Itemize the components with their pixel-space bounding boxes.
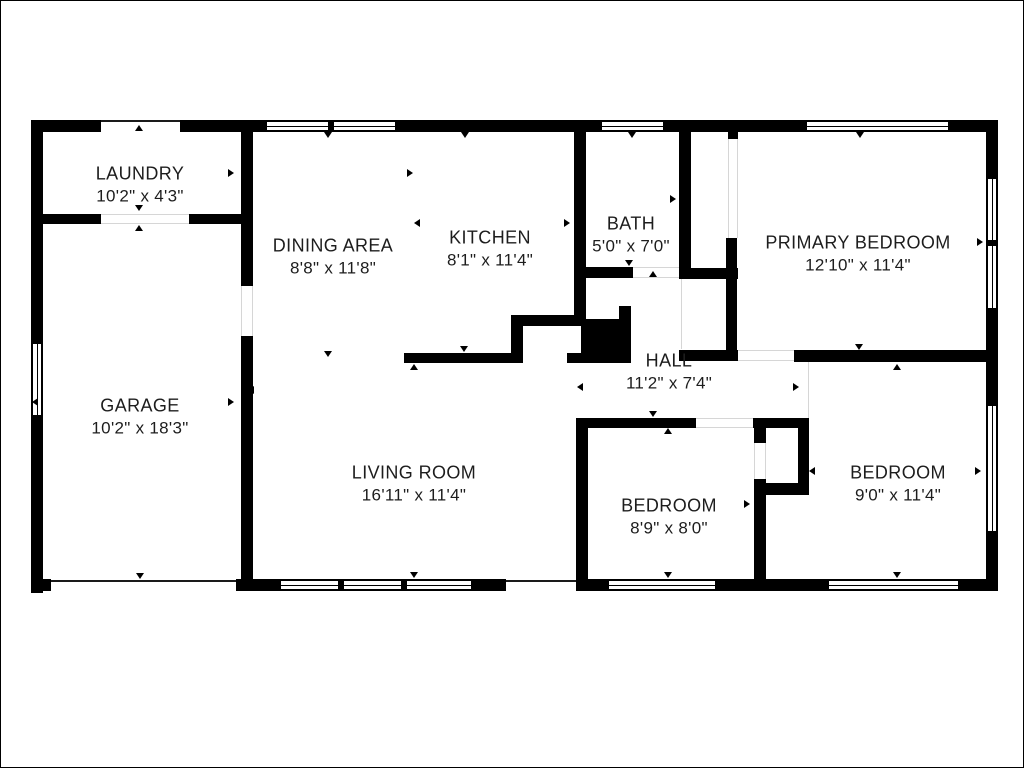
door-opening bbox=[696, 427, 753, 428]
wall bbox=[794, 350, 986, 362]
window-icon bbox=[986, 176, 998, 243]
window-icon bbox=[31, 341, 43, 418]
dimension-arrow-icon bbox=[893, 572, 901, 578]
window-icon bbox=[804, 120, 951, 132]
floor-plan: LAUNDRY10'2" x 4'3"DINING AREA8'8" x 11'… bbox=[0, 0, 1024, 768]
window-glass-line bbox=[992, 406, 993, 531]
room-dimensions: 16'11" x 11'4" bbox=[352, 485, 476, 506]
room-name: HALL bbox=[626, 351, 712, 372]
window-icon bbox=[404, 579, 474, 591]
room-dimensions: 5'0" x 7'0" bbox=[592, 236, 670, 257]
wall bbox=[726, 238, 737, 361]
door-opening bbox=[241, 286, 242, 336]
room-dimensions: 9'0" x 11'4" bbox=[850, 485, 946, 506]
wall bbox=[511, 315, 523, 363]
window-glass-line bbox=[609, 585, 715, 586]
door-opening bbox=[633, 277, 679, 278]
door-opening bbox=[737, 139, 738, 238]
dimension-arrow-icon bbox=[893, 364, 901, 370]
dimension-arrow-icon bbox=[407, 169, 413, 177]
window-glass-line bbox=[829, 585, 958, 586]
room-name: LAUNDRY bbox=[96, 164, 185, 185]
window-icon bbox=[986, 403, 998, 534]
dimension-arrow-icon bbox=[410, 572, 418, 578]
door-opening bbox=[252, 286, 253, 336]
wall bbox=[474, 579, 506, 591]
room-name: PRIMARY BEDROOM bbox=[765, 233, 950, 254]
wall bbox=[241, 336, 253, 591]
dimension-arrow-icon bbox=[579, 500, 585, 508]
room-dimensions: 10'2" x 4'3" bbox=[96, 186, 185, 207]
dimension-arrow-icon bbox=[32, 169, 38, 177]
room-dimensions: 8'8" x 11'8" bbox=[273, 258, 393, 279]
wall bbox=[961, 579, 998, 591]
window-icon bbox=[341, 579, 404, 591]
door-opening bbox=[101, 120, 180, 122]
dimension-arrow-icon bbox=[135, 125, 143, 131]
window-icon bbox=[986, 243, 998, 311]
room-name: DINING AREA bbox=[273, 236, 393, 257]
window-icon bbox=[331, 120, 398, 132]
wall bbox=[581, 319, 631, 363]
dimension-arrow-icon bbox=[564, 219, 570, 227]
dimension-arrow-icon bbox=[744, 500, 750, 508]
room-dimensions: 12'10" x 11'4" bbox=[765, 255, 950, 276]
room-dimensions: 10'2" x 18'3" bbox=[91, 418, 188, 439]
room-dimensions: 8'9" x 8'0" bbox=[621, 518, 717, 539]
door-opening bbox=[101, 223, 189, 224]
window-glass-line bbox=[992, 246, 993, 308]
window-icon bbox=[278, 579, 341, 591]
dimension-arrow-icon bbox=[461, 132, 469, 138]
room-label-bath: BATH5'0" x 7'0" bbox=[592, 214, 670, 257]
wall bbox=[579, 267, 633, 278]
dimension-arrow-icon bbox=[855, 344, 863, 350]
wall bbox=[756, 483, 809, 495]
door-opening bbox=[765, 443, 766, 479]
dimension-arrow-icon bbox=[324, 132, 332, 138]
dimension-arrow-icon bbox=[136, 573, 144, 579]
wall bbox=[576, 418, 696, 428]
window-icon bbox=[264, 120, 331, 132]
dimension-arrow-icon bbox=[247, 169, 253, 177]
wall bbox=[619, 306, 631, 319]
door-opening bbox=[101, 214, 189, 215]
door-opening bbox=[696, 418, 753, 419]
window-icon bbox=[606, 579, 718, 591]
window-icon bbox=[826, 579, 961, 591]
wall bbox=[404, 353, 523, 363]
dimension-arrow-icon bbox=[324, 351, 332, 357]
dimension-arrow-icon bbox=[228, 398, 234, 406]
room-label-bedroom2: BEDROOM8'9" x 8'0" bbox=[621, 496, 717, 539]
door-opening bbox=[681, 279, 682, 349]
dimension-arrow-icon bbox=[228, 169, 234, 177]
dimension-arrow-icon bbox=[977, 238, 983, 246]
window-glass-line bbox=[334, 126, 395, 127]
wall bbox=[398, 120, 599, 132]
room-name: GARAGE bbox=[91, 396, 188, 417]
wall bbox=[798, 418, 809, 493]
dimension-arrow-icon bbox=[135, 225, 143, 231]
wall bbox=[31, 579, 51, 591]
window-glass-line bbox=[992, 179, 993, 240]
wall bbox=[31, 120, 43, 341]
door-opening bbox=[808, 362, 809, 418]
dimension-arrow-icon bbox=[649, 271, 657, 277]
dimension-arrow-icon bbox=[664, 572, 672, 578]
dimension-arrow-icon bbox=[664, 428, 672, 434]
dimension-arrow-icon bbox=[248, 386, 254, 394]
door-opening bbox=[754, 443, 755, 479]
dimension-arrow-icon bbox=[809, 467, 815, 475]
room-label-bedroom3: BEDROOM9'0" x 11'4" bbox=[850, 463, 946, 506]
window-glass-line bbox=[281, 585, 338, 586]
wall bbox=[31, 418, 43, 593]
room-dimensions: 8'1" x 11'4" bbox=[447, 250, 533, 271]
window-glass-line bbox=[344, 585, 401, 586]
room-label-hall: HALL11'2" x 7'4" bbox=[626, 351, 712, 394]
wall bbox=[728, 120, 738, 139]
room-label-laundry: LAUNDRY10'2" x 4'3" bbox=[96, 164, 185, 207]
wall bbox=[986, 311, 998, 403]
window-glass-line bbox=[807, 126, 948, 127]
wall bbox=[679, 132, 691, 279]
dimension-arrow-icon bbox=[414, 219, 420, 227]
room-label-kitchen: KITCHEN8'1" x 11'4" bbox=[447, 228, 533, 271]
wall bbox=[986, 120, 998, 176]
room-label-primary: PRIMARY BEDROOM12'10" x 11'4" bbox=[765, 233, 950, 276]
dimension-arrow-icon bbox=[32, 398, 38, 406]
room-name: KITCHEN bbox=[447, 228, 533, 249]
door-opening bbox=[506, 580, 576, 582]
door-opening bbox=[728, 139, 729, 238]
wall bbox=[574, 132, 586, 326]
window-glass-line bbox=[602, 126, 663, 127]
room-name: LIVING ROOM bbox=[352, 463, 476, 484]
window-glass-line bbox=[407, 585, 471, 586]
wall bbox=[241, 120, 253, 286]
room-label-garage: GARAGE10'2" x 18'3" bbox=[91, 396, 188, 439]
window-glass-line bbox=[267, 126, 328, 127]
dimension-arrow-icon bbox=[625, 260, 633, 266]
room-name: BATH bbox=[592, 214, 670, 235]
door-opening bbox=[51, 580, 236, 582]
dimension-arrow-icon bbox=[628, 132, 636, 138]
dimension-arrow-icon bbox=[577, 383, 583, 391]
room-name: BEDROOM bbox=[850, 463, 946, 484]
dimension-arrow-icon bbox=[729, 239, 735, 247]
dimension-arrow-icon bbox=[793, 383, 799, 391]
window-icon bbox=[599, 120, 666, 132]
dimension-arrow-icon bbox=[856, 132, 864, 138]
dimension-arrow-icon bbox=[410, 364, 418, 370]
room-label-living: LIVING ROOM16'11" x 11'4" bbox=[352, 463, 476, 506]
door-opening bbox=[738, 350, 794, 351]
door-opening bbox=[738, 360, 794, 361]
dimension-arrow-icon bbox=[649, 411, 657, 417]
wall bbox=[754, 479, 766, 591]
dimension-arrow-icon bbox=[580, 195, 586, 203]
dimension-arrow-icon bbox=[670, 195, 676, 203]
dimension-arrow-icon bbox=[975, 467, 981, 475]
room-name: BEDROOM bbox=[621, 496, 717, 517]
wall bbox=[31, 214, 101, 224]
wall bbox=[718, 579, 826, 591]
dimension-arrow-icon bbox=[460, 346, 468, 352]
door-opening bbox=[633, 267, 679, 268]
wall bbox=[754, 418, 766, 443]
room-dimensions: 11'2" x 7'4" bbox=[626, 373, 712, 394]
room-label-dining: DINING AREA8'8" x 11'8" bbox=[273, 236, 393, 279]
